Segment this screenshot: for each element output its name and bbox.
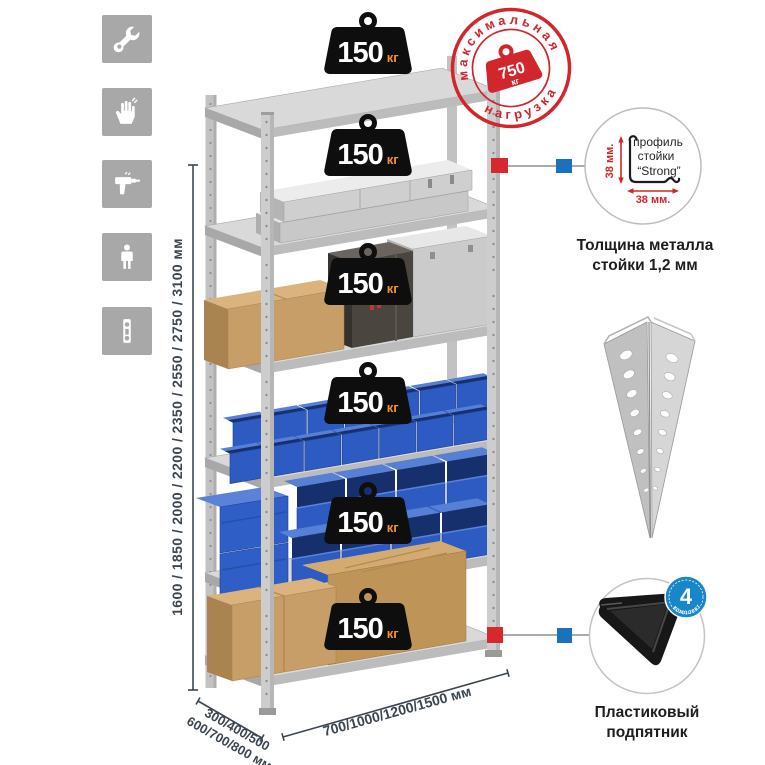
- drill-icon: [112, 169, 142, 199]
- shelf-load-badge-2: 150кг: [318, 114, 418, 180]
- height-dimension-label: 1600 / 1850 / 2000 / 2200 / 2350 / 2550 …: [169, 238, 185, 616]
- shelf-load-badge-3: 150кг: [318, 243, 418, 309]
- connector-bottom: [487, 627, 590, 643]
- load-unit: кг: [387, 401, 399, 414]
- profile-callout-circle: 38 мм. 38 мм. профиль стойки “Strong”: [585, 108, 701, 224]
- load-unit: кг: [387, 153, 399, 166]
- person-icon: [112, 242, 142, 272]
- svg-text:профиль: профиль: [633, 135, 683, 149]
- load-value: 150: [337, 141, 382, 170]
- shelf-load-badge-5: 150кг: [318, 482, 418, 548]
- sidebar-icon-person: [102, 233, 152, 281]
- gloves-icon: [112, 97, 142, 127]
- max-load-stamp: максимальная нагрузка 750 кг: [438, 0, 584, 141]
- profile-dim-horizontal-label: 38 мм.: [636, 194, 671, 206]
- load-value: 150: [337, 39, 382, 68]
- connector-top: [491, 158, 585, 173]
- load-value: 150: [337, 389, 382, 418]
- angle-post-illustration: [604, 317, 695, 538]
- red-marker-bottom: [487, 627, 503, 643]
- load-unit: кг: [387, 51, 399, 64]
- height-dimension-line: [188, 165, 198, 690]
- red-marker-top: [491, 158, 508, 173]
- load-unit: кг: [387, 282, 399, 295]
- sidebar-icon-level: [102, 307, 152, 355]
- load-value: 150: [337, 615, 382, 644]
- svg-text:стойки: стойки: [638, 149, 675, 163]
- sidebar-icon-gloves: [102, 88, 152, 136]
- shelf-load-badge-4: 150кг: [318, 362, 418, 428]
- load-unit: кг: [387, 627, 399, 640]
- sidebar-icon-wrench: [102, 15, 152, 63]
- wrench-icon: [112, 24, 142, 54]
- load-value: 150: [337, 509, 382, 538]
- profile-caption: Толщина металла стойки 1,2 мм: [577, 236, 714, 276]
- infographic-canvas: максимальная нагрузка 750 кг 38: [0, 0, 765, 765]
- load-unit: кг: [387, 521, 399, 534]
- blue-marker-bottom: [557, 628, 572, 643]
- quantity-badge-number: 4: [680, 584, 693, 609]
- level-icon: [112, 316, 142, 346]
- profile-caption-line2: стойки 1,2 мм: [577, 256, 714, 276]
- shelf-load-badge-1: 150кг: [318, 12, 418, 78]
- foot-caption-line1: Пластиковый: [595, 703, 700, 723]
- foot-caption: Пластиковый подпятник: [595, 703, 700, 743]
- shelf-load-badge-6: 150кг: [318, 588, 418, 654]
- load-value: 150: [337, 270, 382, 299]
- svg-text:“Strong”: “Strong”: [637, 164, 680, 178]
- foot-caption-line2: подпятник: [595, 723, 700, 743]
- profile-caption-line1: Толщина металла: [577, 236, 714, 256]
- blue-marker-top: [556, 159, 572, 173]
- profile-dim-vertical-label: 38 мм.: [604, 144, 616, 179]
- sidebar-icon-drill: [102, 160, 152, 208]
